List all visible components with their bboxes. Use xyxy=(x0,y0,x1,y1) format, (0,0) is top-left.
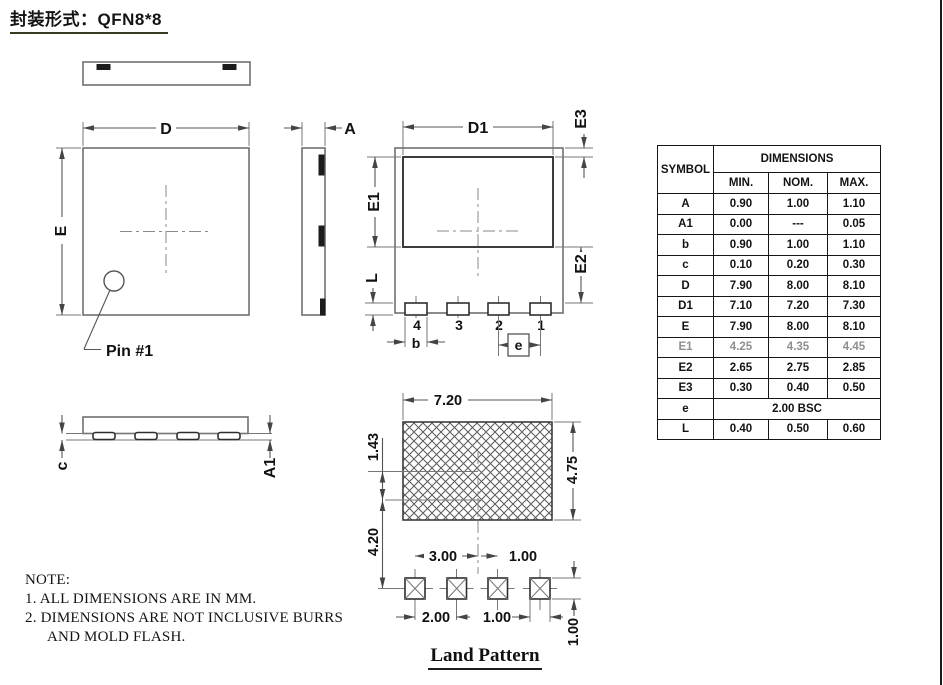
bottom-view: D1 E1 E3 E2 L xyxy=(364,109,593,356)
min-header: MIN. xyxy=(714,173,769,194)
max-header: MAX. xyxy=(828,173,881,194)
dim-label-c: c xyxy=(54,461,71,470)
table-row-A1: A10.00---0.05 xyxy=(658,214,881,235)
dim-label-D1: D1 xyxy=(468,120,489,137)
package-outline-page: 封装形式：QFN8*8 D xyxy=(0,0,943,685)
dim-1-00-width: 1.00 xyxy=(483,610,511,626)
note-line-2: 2. DIMENSIONS ARE NOT INCLUSIVE BURRS xyxy=(25,609,343,628)
table-row-c: c0.100.200.30 xyxy=(658,255,881,276)
dim-2-00: 2.00 xyxy=(422,610,450,626)
dim-label-E1: E1 xyxy=(366,192,383,212)
dim-label-A1: A1 xyxy=(262,458,279,479)
profile-pad-4 xyxy=(218,433,240,440)
table-row-E1: E14.254.354.45 xyxy=(658,337,881,358)
exposed-pad-outline xyxy=(403,157,553,247)
dim-label-E: E xyxy=(53,225,70,236)
note-line-1: 1. ALL DIMENSIONS ARE IN MM. xyxy=(25,590,343,609)
profile-body-outline xyxy=(83,417,248,434)
table-header-row: SYMBOL DIMENSIONS xyxy=(658,146,881,173)
top-edge-view xyxy=(83,62,250,85)
table-row-E2: E22.652.752.85 xyxy=(658,358,881,379)
dim-label-L: L xyxy=(364,273,381,283)
nom-header: NOM. xyxy=(769,173,828,194)
edge-pad-right xyxy=(223,65,236,70)
pin-number-2: 2 xyxy=(495,317,503,333)
dimensions-table: SYMBOL DIMENSIONS MIN. NOM. MAX. A0.901.… xyxy=(657,145,881,440)
table-row-L: L0.400.500.60 xyxy=(658,419,881,440)
dim-3-00: 3.00 xyxy=(429,549,457,565)
note-heading: NOTE: xyxy=(25,571,343,590)
lead-pad-3 xyxy=(447,303,469,315)
pin-number-3: 3 xyxy=(455,317,463,333)
note-line-3: AND MOLD FLASH. xyxy=(25,628,343,647)
dimensions-header: DIMENSIONS xyxy=(714,146,881,173)
table-row-A: A0.901.001.10 xyxy=(658,194,881,215)
dim-label-b: b xyxy=(412,335,421,351)
dim-label-E3: E3 xyxy=(573,109,590,129)
dim-1-00-height: 1.00 xyxy=(566,618,582,646)
table-row-E: E7.908.008.10 xyxy=(658,317,881,338)
pin1-label: Pin #1 xyxy=(106,343,153,360)
profile-pad-1 xyxy=(93,433,115,440)
pin1-marker-circle xyxy=(104,271,124,291)
lead-pad-2 xyxy=(488,303,509,315)
dim-4-20: 4.20 xyxy=(366,528,382,556)
top-view: D E Pin #1 xyxy=(53,119,249,360)
side-pad-lower xyxy=(319,226,324,246)
dim-7-20: 7.20 xyxy=(434,393,462,409)
side-pad-bottom xyxy=(321,299,326,315)
dim-label-e: e xyxy=(515,337,523,353)
lead-pad-1 xyxy=(530,303,551,315)
side-pad-upper xyxy=(319,155,324,175)
profile-pad-3 xyxy=(177,433,199,440)
table-row-E3: E30.300.400.50 xyxy=(658,378,881,399)
edge-pad-left xyxy=(97,65,110,70)
lead-pad-4 xyxy=(405,303,427,315)
pin1-leader-line xyxy=(84,290,110,349)
profile-view: c A1 xyxy=(54,415,279,478)
land-pattern-title: Land Pattern xyxy=(428,645,542,670)
dim-label-A: A xyxy=(344,121,356,138)
dim-label-E2: E2 xyxy=(573,254,590,274)
symbol-header: SYMBOL xyxy=(658,146,714,194)
pin-number-4: 4 xyxy=(413,317,421,333)
table-row-e: e2.00 BSC xyxy=(658,399,881,420)
dim-4-75: 4.75 xyxy=(565,456,581,484)
table-row-D1: D17.107.207.30 xyxy=(658,296,881,317)
notes-block: NOTE: 1. ALL DIMENSIONS ARE IN MM. 2. DI… xyxy=(25,571,343,647)
pin-number-1: 1 xyxy=(537,317,545,333)
profile-pad-2 xyxy=(135,433,157,440)
table-row-b: b0.901.001.10 xyxy=(658,235,881,256)
land-pattern-drawing: 7.20 4.75 1.43 4.20 xyxy=(366,392,582,646)
side-view: A xyxy=(284,121,356,315)
table-row-D: D7.908.008.10 xyxy=(658,276,881,297)
dim-1-00-pitch: 1.00 xyxy=(509,549,537,565)
dim-label-D: D xyxy=(160,121,172,138)
dim-1-43: 1.43 xyxy=(366,433,382,461)
